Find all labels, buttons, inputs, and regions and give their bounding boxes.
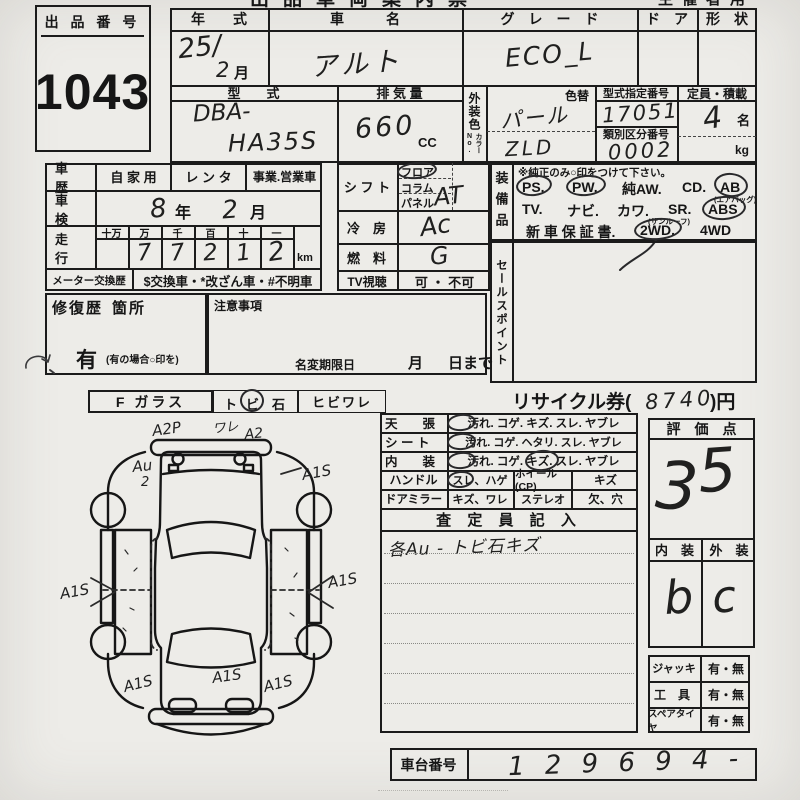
cowl-notch-right [244,465,253,471]
equip-warranty: 新 車 保 証 書. [526,222,615,242]
seat-label: シ ー ト [380,432,447,451]
handle-label: ハンドル [380,470,447,489]
damage-annotation: A2 [243,425,264,443]
annotation-leader-right-front [281,468,301,474]
spare-tire-label: スペアタイヤ [648,707,700,733]
usage-business: 事業.営業車 [247,163,322,190]
right-door-panel [271,530,307,654]
right-front-fender [277,452,314,530]
line [486,85,488,163]
color-change-label: 色替 [565,87,589,104]
divider [41,35,144,37]
line [648,560,755,562]
repair-arrow-mark [22,348,56,376]
mileage-unit-0: 十万 [95,226,128,238]
color-no-label: カラーNo. [464,133,485,163]
displacement-unit: cc [418,135,437,150]
mileage-unit-3: 百 [194,226,227,238]
dashed-divider [487,131,595,132]
damage-annotation: A1S [210,665,243,687]
capacity-kg: kg [735,143,749,157]
dotted-rule [384,673,634,674]
model-prefix-value: DBA- [192,99,251,128]
chassis-number-label: 車台番号 [390,748,467,781]
exterior-grade-value: c [709,571,738,624]
caution-label: 注意事項 [214,297,262,314]
inspection-label: 車 検 [45,192,95,225]
jack-value: 有・無 [702,655,750,681]
fglass-label: F ガラス [88,390,213,413]
mileage-digit-3: 2 [193,238,228,268]
mileage-km-unit: km [297,252,313,264]
month-unit: 月 [234,62,249,83]
name-header: 車 名 [268,8,462,30]
rename-day-unit: 日まで [448,352,493,373]
sales-point-label: セールスポイント [490,245,512,380]
type-no-label: 型式指定番号 [597,86,675,100]
top-title-text: 出品車両案内票 [250,0,481,8]
door-header: ド ア [637,8,697,30]
exterior-grade-label: 外 装 [703,538,755,560]
inspection-year-unit: 年 [175,199,191,223]
annotation-chevron-left [91,578,115,606]
interior-grade-value: b [662,569,695,625]
recycle-suffix: )円 [710,387,735,414]
score-header: 評 価 点 [648,419,755,438]
class-no-value: 0002 [607,137,674,164]
interior-label: 内 装 [380,451,447,470]
equip-cd: CD. [682,179,706,195]
mileage-unit-2: 千 [161,226,194,238]
damage-annotation: A1S [121,671,155,696]
door-mirror-label: ドアミラー [380,489,447,508]
mileage-unit-4: 十 [227,226,260,238]
shift-label: シ フ ト [337,163,397,210]
spare-tire-value: 有・無 [702,707,750,733]
model-code-value: HA35S [228,126,319,157]
damage-annotation: A2P [150,418,183,440]
equip-navi: ナビ. [567,201,599,221]
crack-label: ヒビワレ [298,390,386,413]
damage-annotation: A1S [261,671,295,696]
capacity-unit: 名 [737,110,750,129]
chip-prefix: ト [224,394,237,413]
repair-has-note: (有の場合○印を) [106,351,179,366]
repair-spot-label: 箇所 [112,297,146,318]
meter-exchange-options: $交換車・*改ざん車・#不明車 [134,270,322,291]
repair-has-value: 有 [76,344,97,374]
right-rocker-strip [309,530,321,623]
inspection-year-value: 8 [149,193,168,224]
damage-annotation: A1S [58,580,91,603]
mileage-digit-4: 1 [226,237,262,268]
top-clipped-title: 出品車両案内票 [250,0,510,8]
assessor-header: 査 定 員 記 入 [380,508,638,530]
stereo-options: 欠、穴 [573,489,638,508]
dotted-rule [384,703,634,704]
stereo-label: ステレオ [515,489,571,508]
cowl-notch-left [169,465,178,471]
tools-label: 工 具 [648,681,700,707]
seat-options: 汚れ. コゲ. ヘタリ. スレ. ヤブレ [449,432,638,451]
score-digit-1: 3 [653,447,700,527]
equip-sr: SR. [668,201,691,217]
equip-tv: TV. [522,201,543,217]
dotted-rule [384,613,634,614]
grade-header: グ レ ー ド [462,8,637,30]
interior-grade-label: 内 装 [648,538,701,560]
color-code-value: ZLD [504,135,554,162]
auction-number-label: 出 品 番 号 [37,10,148,34]
auction-sheet: 出品車両案内票 主催者用 出 品 番 号 1043 年 式 車 名 グ レ ー … [0,0,800,800]
tv-options: 可 ・ 不可 [399,272,490,291]
top-right-text: 主催者用 [658,0,754,8]
equip-aw: 純AW. [622,179,662,199]
dotted-rule [384,553,634,554]
dotted-rule [384,583,634,584]
car-damage-diagram: A2P ワレ A2 Au 2 A1S A1S A1S A1S A1S A1S [45,418,377,750]
damage-annotation: A1S [300,461,333,484]
inspection-month-value: 2 [221,194,239,224]
recycle-value: 8740 [644,386,715,415]
damage-annotation: Au [131,456,154,476]
mileage-digit-2: 7 [159,237,195,269]
mileage-label: 走 行 [45,227,95,268]
damage-annotation: ワレ [212,419,239,437]
top-clipped-right: 主催者用 [658,0,768,8]
line [467,748,469,781]
mileage-digit-5: 2 [258,235,295,269]
tools-value: 有・無 [702,681,750,707]
rear-skirt [157,724,265,735]
shift-value: AT [433,181,465,212]
dashed-divider [678,136,756,137]
car-history-label: 車 歴 [45,163,95,190]
sales-point-box [490,241,757,383]
month-value: 2 [216,58,229,82]
left-door-panel [115,530,151,654]
score-digit-2: 5 [696,435,739,507]
line [512,241,514,383]
damage-annotation: 2 [141,475,149,490]
auction-number-value: 1043 [37,57,148,127]
chip-suffix: 石 [272,394,285,413]
recycle-prefix: リサイクル券( [512,387,631,414]
left-rocker-strip [101,530,113,623]
usage-private: 自 家 用 [97,163,170,190]
displacement-header: 排 気 量 [337,85,462,100]
equip-leather: カワ. [617,201,649,221]
door-mirror-options: キズ、ワレ [449,489,511,508]
meter-exchange-label: メーター交換歴 [47,270,131,291]
year-header: 年 式 [170,8,268,30]
damage-annotation: A1S [326,569,359,592]
equipment-label: 装備品 [490,166,512,238]
model-header: 型 式 [170,85,337,100]
mileage-digit-1: 7 [127,238,162,269]
auction-number-box: 出 品 番 号 1043 [35,5,151,152]
usage-rental: レ ン タ [172,163,245,190]
headliner-label: 天 張 [380,413,447,432]
headliner-options: 汚れ. コゲ. キズ. スレ. ヤブレ [449,413,638,432]
dotted-rule [384,643,634,644]
inspection-month-unit: 月 [250,199,266,223]
rename-deadline-label: 名変期限日 [295,356,355,373]
capacity-header: 定員・積載 [677,86,757,100]
line [512,163,514,241]
mileage-digit-0 [95,239,128,267]
repair-label: 修復歴 [52,297,103,318]
rename-month-unit: 月 [408,352,423,373]
tv-label: TV視聴 [337,272,397,291]
car-name-value: アルト [309,39,404,84]
windshield [167,522,255,558]
shift-option-panel: パネル [401,195,434,211]
exterior-color-label: 外装色 [463,87,486,135]
shape-header: 形 状 [697,8,757,30]
displacement-value: 660 [354,110,417,145]
wheel-label: ホイール(CP) [515,470,571,489]
ac-value: Ac [418,209,453,242]
ac-label: 冷 房 [337,212,397,243]
equip-4wd: 4WD [700,222,731,238]
jack-label: ジャッキ [648,655,700,681]
rear-window [167,629,255,668]
fuel-value: G [429,241,450,271]
mileage-unit-1: 万 [128,226,161,238]
assessor-note: 各Au - トビ石キズ [388,530,541,560]
dotted-artifact [378,790,508,791]
wheel-options: キズ [573,470,638,489]
fuel-label: 燃 料 [337,245,397,270]
